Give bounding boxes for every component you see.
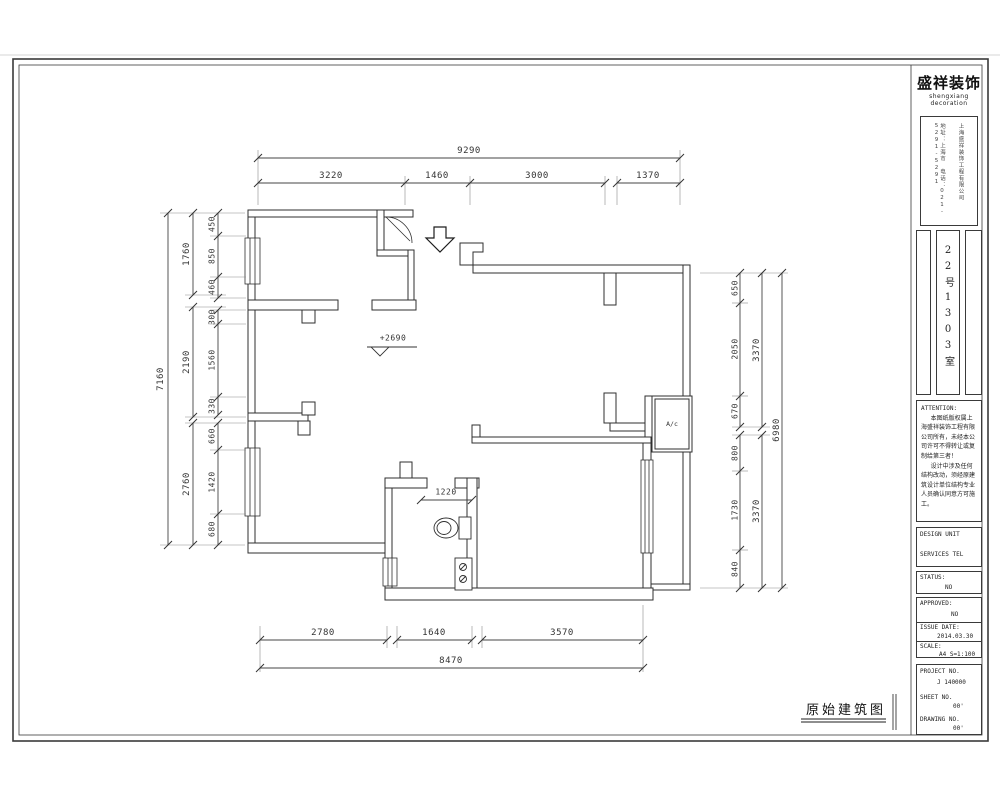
door-arc — [386, 217, 412, 243]
room-number-box: 22号1303室 — [936, 230, 960, 395]
dim-left-in-3: 460 — [208, 279, 217, 295]
dim-right-in-2: 2050 — [731, 338, 740, 359]
dim-left-in-2: 850 — [208, 248, 217, 264]
dim-bottom-1: 2780 — [311, 628, 335, 638]
dim-right-in-3: 670 — [731, 403, 740, 419]
brand-logo-en: shengxiang decoration — [912, 93, 986, 107]
project-no-label: PROJECT NO. — [920, 668, 960, 675]
entry-arrow-icon — [426, 227, 454, 252]
attention-box: ATTENTION: 本图纸版权属上海盛祥装饰工程有限公司所有，未经本公司许可不… — [916, 400, 982, 522]
dim-right-in-5: 1730 — [731, 499, 740, 520]
scale-label: SCALE: — [920, 643, 942, 650]
dim-left-mid-2: 2190 — [182, 350, 192, 374]
dim-left-in-7: 660 — [208, 428, 217, 444]
dim-top-1: 3220 — [319, 171, 343, 181]
dim-bath-width: 1220 — [435, 488, 456, 497]
dim-bottom-total: 8470 — [439, 656, 463, 666]
ac-label: A/c — [666, 420, 678, 428]
level-marker-icon — [367, 347, 417, 356]
dim-right-in-4: 800 — [731, 445, 740, 461]
level-marker-label: +2690 — [380, 334, 407, 343]
company-name-vertical: 上海盛祥装饰工程有限公司 — [957, 123, 963, 201]
dim-top-4: 1370 — [636, 171, 660, 181]
dim-left-in-9: 680 — [208, 521, 217, 537]
approval-box: APPROVED: NO ISSUE DATE: 2014.03.30 SCAL… — [916, 597, 982, 658]
dim-bottom-3: 3570 — [550, 628, 574, 638]
drawing-no-value: 00' — [953, 725, 964, 732]
drawing-sheet: 9290 3220 1460 3000 1370 2780 1640 3570 … — [0, 0, 1000, 800]
dim-left-in-8: 1420 — [208, 471, 217, 492]
status-value: NO — [945, 584, 952, 591]
dim-left-in-4: 300 — [208, 309, 217, 325]
drawing-border — [13, 59, 988, 741]
issue-date-label: ISSUE DATE: — [920, 624, 960, 631]
project-no-value: J 140000 — [937, 679, 966, 686]
dim-left-in-1: 450 — [208, 216, 217, 232]
side-strip-left — [916, 230, 931, 395]
divider — [917, 622, 981, 623]
company-contact-vertical: 地址：上海市 电话：021-5291-5291 — [933, 123, 944, 225]
side-strip-right — [965, 230, 982, 395]
company-info-box: 上海盛祥装饰工程有限公司 地址：上海市 电话：021-5291-5291 — [920, 116, 978, 226]
brand-logo-cn: 盛祥装饰 — [916, 72, 982, 93]
dim-right-in-6: 840 — [731, 561, 740, 577]
dim-left-total: 7160 — [156, 367, 166, 391]
drawing-title: 原始建筑图 — [806, 699, 886, 718]
dim-left-in-5: 1560 — [208, 349, 217, 370]
dim-right-mid-1: 3370 — [752, 338, 762, 362]
dim-left-mid-1: 1760 — [182, 242, 192, 266]
sheet-no-label: SHEET NO. — [920, 694, 953, 701]
attention-title: ATTENTION: — [921, 404, 977, 414]
project-box: PROJECT NO. J 140000 SHEET NO. 00' DRAWI… — [916, 664, 982, 735]
scale-value: A4 S=1:100 — [939, 651, 975, 658]
drawing-no-label: DRAWING NO. — [920, 716, 960, 723]
dim-right-mid-2: 3370 — [752, 499, 762, 523]
dim-right-total: 6980 — [772, 418, 782, 442]
walls — [248, 210, 690, 600]
dim-top-2: 1460 — [425, 171, 449, 181]
dim-top-total: 9290 — [457, 146, 481, 156]
toilet — [434, 517, 471, 539]
pipe-riser-box — [455, 558, 472, 590]
dim-left-mid-3: 2760 — [182, 472, 192, 496]
design-unit-box: DESIGN UNIT SERVICES TEL — [916, 527, 982, 567]
divider — [917, 641, 981, 642]
approved-label: APPROVED: — [920, 600, 953, 607]
issue-date-value: 2014.03.30 — [937, 633, 973, 640]
approved-value: NO — [951, 611, 958, 618]
attention-paragraph-2: 设计中涉及任何结构改动，须经原建筑设计单位结构专业人员确认同意方可施工。 — [921, 462, 977, 510]
room-number-label: 22号1303室 — [941, 245, 956, 371]
floor-plan-canvas — [0, 0, 1000, 800]
dim-top-3: 3000 — [525, 171, 549, 181]
status-label: STATUS: — [920, 574, 945, 581]
attention-paragraph-1: 本图纸版权属上海盛祥装饰工程有限公司所有，未经本公司许可不得转让或复制给第三者！ — [921, 414, 977, 462]
sheet-no-value: 00' — [953, 703, 964, 710]
dim-right-in-1: 650 — [731, 280, 740, 296]
status-box: STATUS: NO — [916, 571, 982, 594]
design-unit-label: DESIGN UNIT — [920, 531, 960, 538]
design-unit-value: SERVICES TEL — [920, 551, 963, 558]
dim-bottom-2: 1640 — [422, 628, 446, 638]
dim-left-in-6: 330 — [208, 398, 217, 414]
